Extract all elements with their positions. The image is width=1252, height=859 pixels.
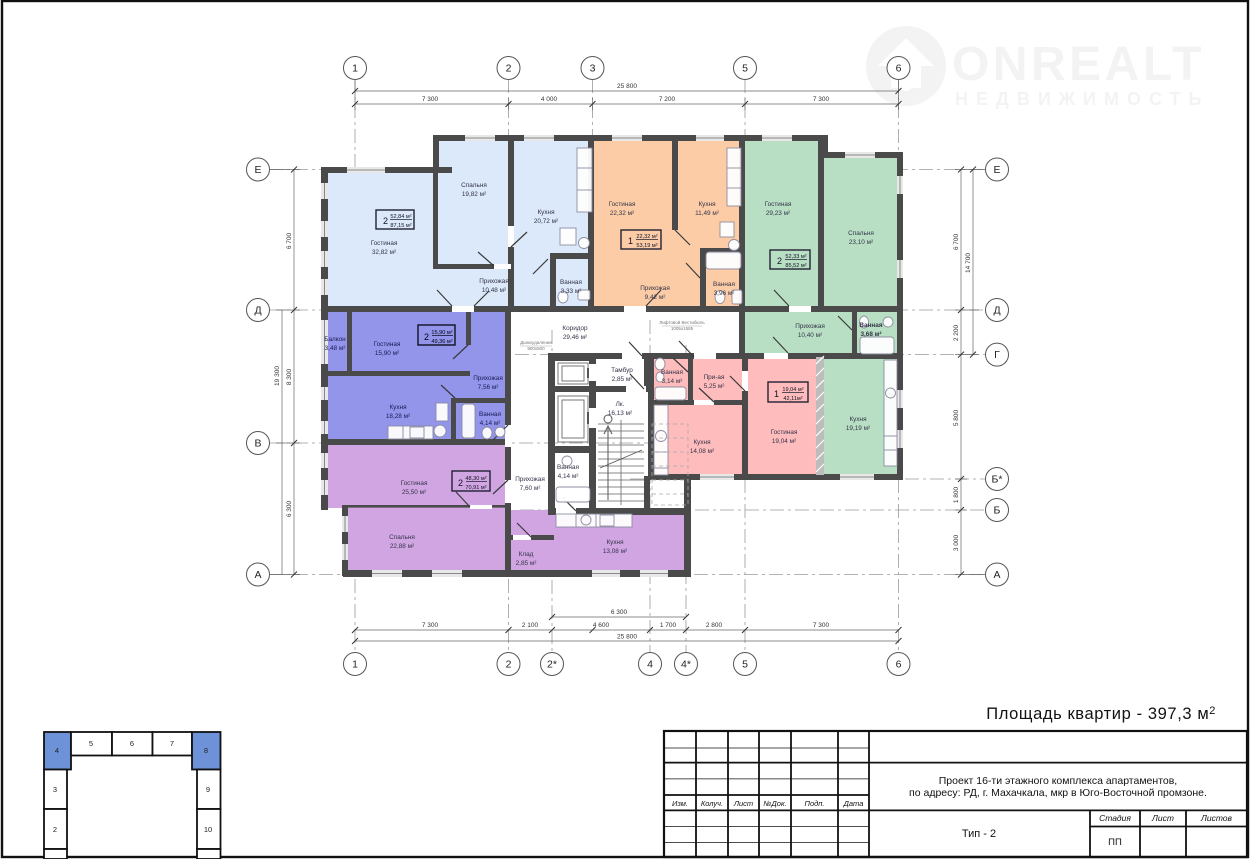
svg-text:Гостиная: Гостиная — [374, 341, 401, 348]
svg-text:23,10 м²: 23,10 м² — [849, 239, 873, 246]
svg-text:7,56 м²: 7,56 м² — [478, 384, 499, 391]
svg-text:Ванная: Ванная — [713, 281, 735, 288]
svg-text:11,49 м²: 11,49 м² — [695, 210, 719, 217]
svg-text:Колуч.: Колуч. — [701, 799, 723, 808]
svg-text:Проект 16-ти этажного комплекс: Проект 16-ти этажного комплекса апартаме… — [939, 775, 1177, 787]
svg-text:по адресу: РД, г. Махачкала, м: по адресу: РД, г. Махачкала, мкр в Юго-В… — [909, 787, 1207, 799]
svg-text:4: 4 — [647, 659, 653, 671]
svg-text:8: 8 — [204, 746, 208, 755]
svg-text:4,14 м²: 4,14 м² — [480, 420, 501, 427]
svg-text:Гостиная: Гостиная — [765, 201, 792, 208]
svg-text:Б*: Б* — [992, 474, 1003, 486]
svg-text:Лист: Лист — [733, 799, 753, 808]
svg-text:В: В — [254, 438, 261, 450]
svg-text:7 300: 7 300 — [813, 96, 830, 103]
svg-text:25 800: 25 800 — [617, 83, 637, 90]
svg-text:15,90 м²: 15,90 м² — [431, 330, 452, 336]
svg-text:25,50 м²: 25,50 м² — [402, 489, 426, 496]
svg-text:Дымоудаление: Дымоудаление — [520, 340, 552, 345]
svg-text:1 700: 1 700 — [660, 622, 677, 629]
svg-text:Прихожая: Прихожая — [795, 323, 825, 330]
svg-text:29,23 м²: 29,23 м² — [766, 210, 790, 217]
svg-text:6: 6 — [896, 659, 902, 671]
svg-text:19,19 м²: 19,19 м² — [846, 425, 870, 432]
svg-text:900х500: 900х500 — [527, 346, 545, 351]
svg-text:32,82 м²: 32,82 м² — [372, 249, 396, 256]
svg-text:22,32 м²: 22,32 м² — [636, 234, 657, 240]
svg-text:6 700: 6 700 — [286, 232, 293, 249]
svg-text:1005х1585: 1005х1585 — [671, 326, 694, 331]
svg-text:6 300: 6 300 — [286, 500, 293, 517]
svg-text:1: 1 — [774, 389, 779, 399]
svg-text:Г: Г — [994, 349, 1000, 361]
svg-text:Площадь квартир - 397,3 м2: Площадь квартир - 397,3 м2 — [986, 705, 1216, 723]
svg-text:14,08 м²: 14,08 м² — [690, 448, 714, 455]
svg-text:1: 1 — [352, 63, 358, 75]
svg-text:Кухня: Кухня — [693, 439, 711, 446]
svg-text:Ванная: Ванная — [560, 279, 582, 286]
svg-text:Гостиная: Гостиная — [609, 201, 636, 208]
svg-text:Ванная: Ванная — [661, 369, 683, 376]
svg-text:6: 6 — [896, 63, 902, 75]
svg-text:4*: 4* — [681, 659, 691, 671]
svg-text:Балкон: Балкон — [324, 336, 346, 343]
svg-text:7 200: 7 200 — [659, 96, 676, 103]
svg-text:5: 5 — [742, 63, 748, 75]
svg-text:Кухня: Кухня — [537, 209, 555, 216]
svg-text:3,96 м²: 3,96 м² — [714, 290, 735, 297]
svg-text:10,40 м²: 10,40 м² — [798, 332, 822, 339]
svg-text:Подп.: Подп. — [805, 799, 825, 808]
svg-text:Коридор: Коридор — [562, 325, 588, 332]
svg-text:Прихожая: Прихожая — [479, 278, 509, 285]
svg-text:2: 2 — [383, 216, 388, 226]
svg-text:Гостиная: Гостиная — [771, 429, 798, 436]
svg-text:2: 2 — [777, 256, 782, 266]
svg-text:Ванная: Ванная — [479, 411, 501, 418]
svg-text:2: 2 — [506, 659, 512, 671]
svg-text:2,85 м²: 2,85 м² — [612, 376, 633, 383]
svg-text:20,72 м²: 20,72 м² — [534, 218, 558, 225]
svg-text:18,28 м²: 18,28 м² — [386, 413, 410, 420]
svg-text:85,52 м²: 85,52 м² — [785, 263, 806, 269]
svg-text:52,33 м²: 52,33 м² — [785, 254, 806, 260]
svg-text:Спальня: Спальня — [461, 182, 487, 189]
svg-text:22,88 м²: 22,88 м² — [390, 543, 414, 550]
svg-text:2: 2 — [53, 825, 57, 834]
svg-text:Ванная: Ванная — [557, 464, 579, 471]
svg-text:19,82 м²: 19,82 м² — [462, 191, 486, 198]
svg-text:Б: Б — [994, 505, 1001, 517]
svg-text:48,30 м²: 48,30 м² — [465, 476, 486, 482]
svg-text:16,13 м²: 16,13 м² — [608, 410, 632, 417]
svg-text:6 700: 6 700 — [953, 233, 960, 250]
svg-text:НЕДВИЖИМОСТЬ: НЕДВИЖИМОСТЬ — [955, 89, 1209, 109]
svg-text:Кухня: Кухня — [389, 404, 407, 411]
svg-text:53,19 м²: 53,19 м² — [636, 243, 657, 249]
svg-text:3,14 м²: 3,14 м² — [662, 378, 683, 385]
svg-text:6: 6 — [130, 739, 134, 748]
svg-text:Д: Д — [993, 305, 1000, 317]
svg-text:А: А — [993, 569, 1000, 581]
svg-text:2,85 м²: 2,85 м² — [516, 560, 537, 567]
svg-text:5: 5 — [742, 659, 748, 671]
svg-text:2 200: 2 200 — [953, 324, 960, 341]
svg-text:25 800: 25 800 — [617, 634, 637, 641]
svg-text:7,60 м²: 7,60 м² — [520, 485, 541, 492]
svg-text:2: 2 — [506, 63, 512, 75]
svg-text:Прихожая: Прихожая — [473, 375, 503, 382]
svg-text:19 300: 19 300 — [274, 366, 281, 386]
svg-text:10,48 м²: 10,48 м² — [482, 287, 506, 294]
svg-text:2*: 2* — [547, 659, 557, 671]
svg-text:4 600: 4 600 — [593, 622, 610, 629]
svg-text:Е: Е — [993, 164, 1000, 176]
svg-text:5,25 м²: 5,25 м² — [704, 383, 725, 390]
svg-text:3: 3 — [590, 63, 596, 75]
svg-text:Кухня: Кухня — [849, 416, 867, 423]
svg-text:2: 2 — [424, 332, 429, 342]
svg-text:Прихожая: Прихожая — [515, 476, 545, 483]
svg-text:При-ая: При-ая — [704, 374, 725, 381]
svg-text:15,90 м²: 15,90 м² — [375, 350, 399, 357]
svg-text:1: 1 — [352, 659, 358, 671]
svg-text:9,42 м²: 9,42 м² — [645, 294, 666, 301]
svg-text:87,15 м²: 87,15 м² — [390, 223, 411, 229]
svg-text:Лк.: Лк. — [616, 401, 625, 408]
svg-text:Стадия: Стадия — [1099, 813, 1131, 823]
svg-text:9: 9 — [206, 785, 210, 794]
svg-text:Д: Д — [254, 305, 261, 317]
svg-text:ПП: ПП — [1108, 837, 1122, 848]
svg-text:ONREALT: ONREALT — [952, 38, 1205, 91]
svg-text:10: 10 — [204, 825, 212, 834]
svg-text:19,04 м²: 19,04 м² — [772, 438, 796, 445]
svg-text:7: 7 — [170, 739, 174, 748]
svg-text:29,46 м²: 29,46 м² — [563, 334, 587, 341]
svg-text:13,08 м²: 13,08 м² — [603, 548, 627, 555]
svg-text:1: 1 — [628, 236, 633, 246]
svg-text:14 700: 14 700 — [965, 253, 972, 273]
svg-text:7 300: 7 300 — [422, 622, 439, 629]
svg-text:Дата: Дата — [843, 799, 864, 808]
svg-text:52,84 м²: 52,84 м² — [390, 214, 411, 220]
svg-text:Кухня: Кухня — [606, 539, 624, 546]
svg-text:Изм.: Изм. — [672, 799, 688, 808]
svg-text:49,36 м²: 49,36 м² — [431, 339, 452, 345]
svg-text:2 100: 2 100 — [522, 622, 539, 629]
svg-text:3,48 м²: 3,48 м² — [325, 345, 346, 352]
svg-text:4: 4 — [55, 746, 59, 755]
svg-text:Лифтовой Вестибюль: Лифтовой Вестибюль — [659, 319, 705, 325]
svg-text:4 000: 4 000 — [541, 96, 558, 103]
svg-text:А: А — [254, 569, 261, 581]
svg-text:19,04 м²: 19,04 м² — [782, 387, 803, 393]
svg-text:3,33 м²: 3,33 м² — [561, 288, 582, 295]
svg-text:2: 2 — [458, 478, 463, 488]
svg-text:5 800: 5 800 — [953, 409, 960, 426]
svg-text:Тип - 2: Тип - 2 — [962, 828, 996, 840]
svg-text:3 000: 3 000 — [953, 534, 960, 551]
svg-text:Клад: Клад — [519, 551, 534, 558]
svg-text:Тамбур: Тамбур — [611, 366, 633, 374]
svg-text:42,11м²: 42,11м² — [783, 396, 802, 402]
svg-text:4,14 м²: 4,14 м² — [558, 473, 579, 480]
svg-text:2 800: 2 800 — [706, 622, 723, 629]
svg-text:7 300: 7 300 — [813, 622, 830, 629]
svg-text:3: 3 — [53, 785, 57, 794]
svg-text:70,91 м²: 70,91 м² — [465, 485, 486, 491]
svg-text:№Док.: №Док. — [763, 799, 786, 808]
svg-text:Лист: Лист — [1151, 813, 1174, 823]
svg-text:Спальня: Спальня — [848, 230, 874, 237]
svg-text:Прихожая: Прихожая — [640, 285, 670, 292]
svg-text:8 300: 8 300 — [286, 368, 293, 385]
svg-text:6 300: 6 300 — [611, 609, 628, 616]
svg-text:3,68 м²: 3,68 м² — [860, 331, 881, 338]
svg-text:Кухня: Кухня — [698, 201, 716, 208]
svg-text:Спальня: Спальня — [389, 534, 415, 541]
svg-text:7 300: 7 300 — [422, 96, 439, 103]
svg-text:Е: Е — [254, 164, 261, 176]
svg-text:Листов: Листов — [1200, 813, 1233, 823]
svg-text:Ванная: Ванная — [859, 322, 882, 329]
svg-text:Гостиная: Гостиная — [371, 240, 398, 247]
svg-text:Гостиная: Гостиная — [401, 480, 428, 487]
svg-text:5: 5 — [89, 739, 93, 748]
svg-text:22,32 м²: 22,32 м² — [610, 210, 634, 217]
svg-text:1 800: 1 800 — [953, 486, 960, 503]
